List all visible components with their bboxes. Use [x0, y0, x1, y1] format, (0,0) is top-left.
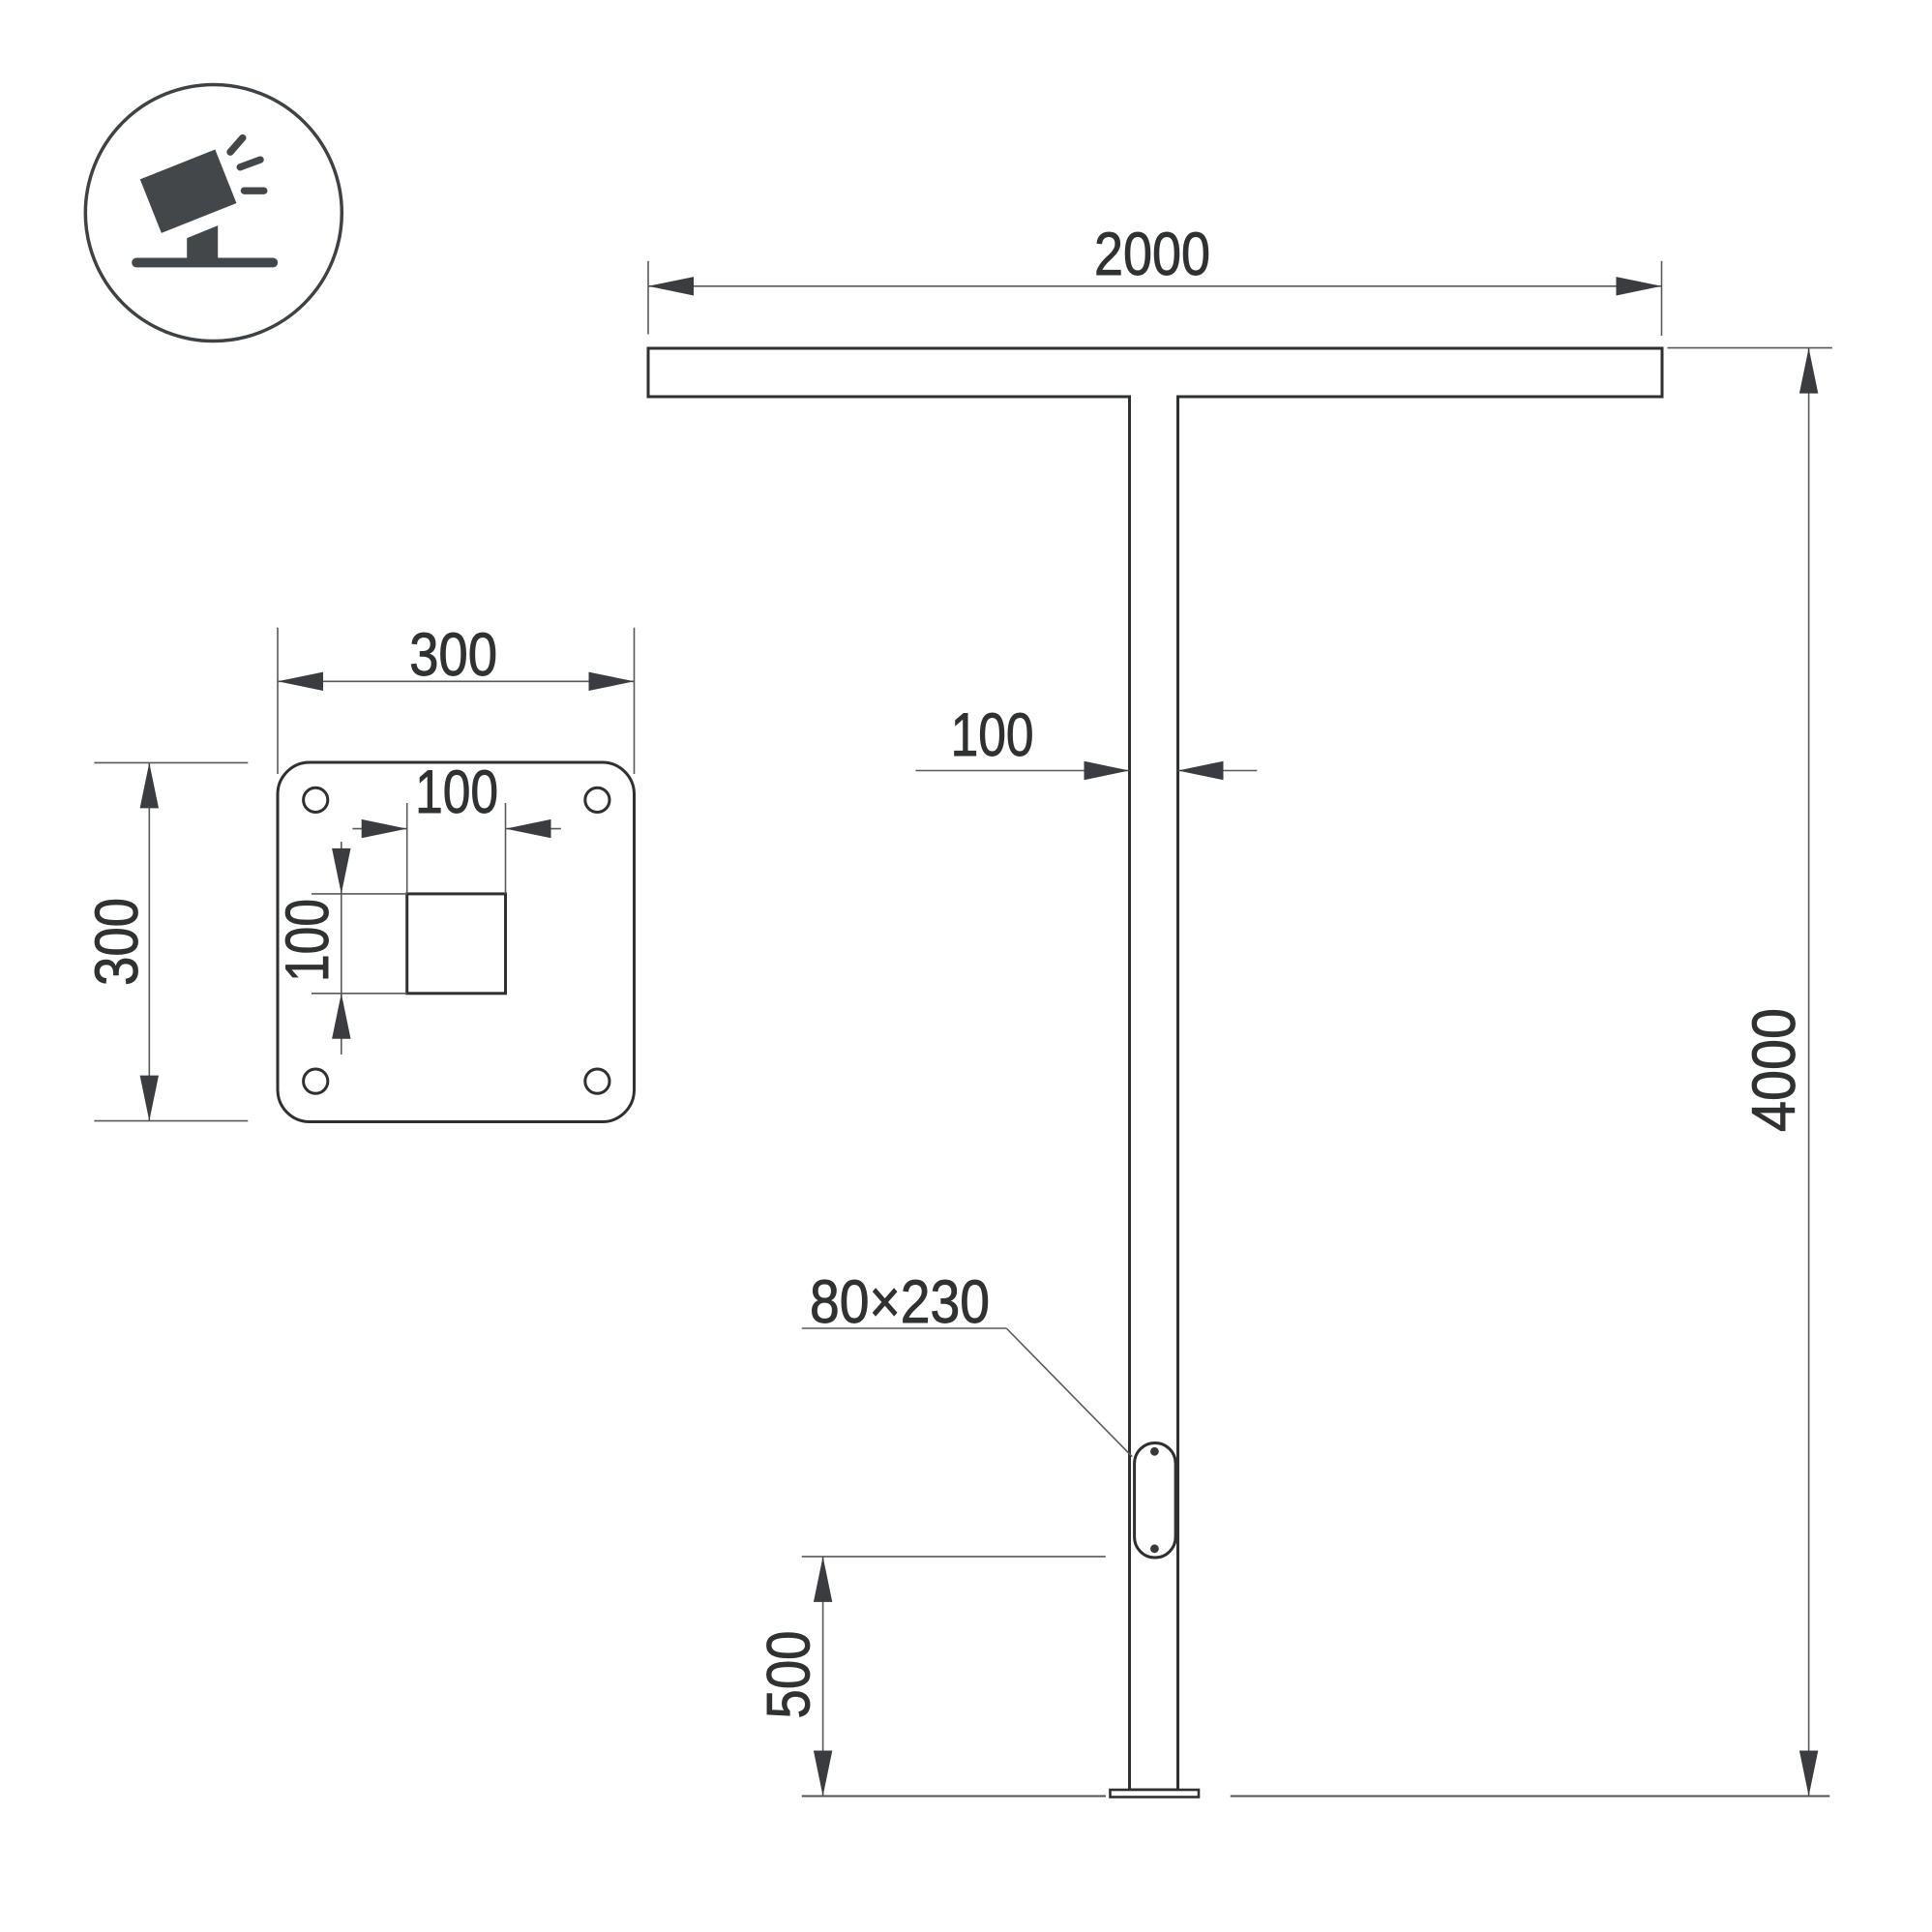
svg-text:80×230: 80×230	[810, 1268, 990, 1336]
svg-text:100: 100	[951, 701, 1034, 769]
svg-text:100: 100	[415, 758, 498, 826]
svg-text:300: 300	[83, 898, 151, 986]
svg-text:500: 500	[756, 1631, 823, 1719]
svg-text:2000: 2000	[1094, 221, 1210, 288]
svg-text:4000: 4000	[1740, 1008, 1808, 1132]
svg-text:300: 300	[409, 621, 497, 689]
svg-text:100: 100	[274, 899, 342, 982]
